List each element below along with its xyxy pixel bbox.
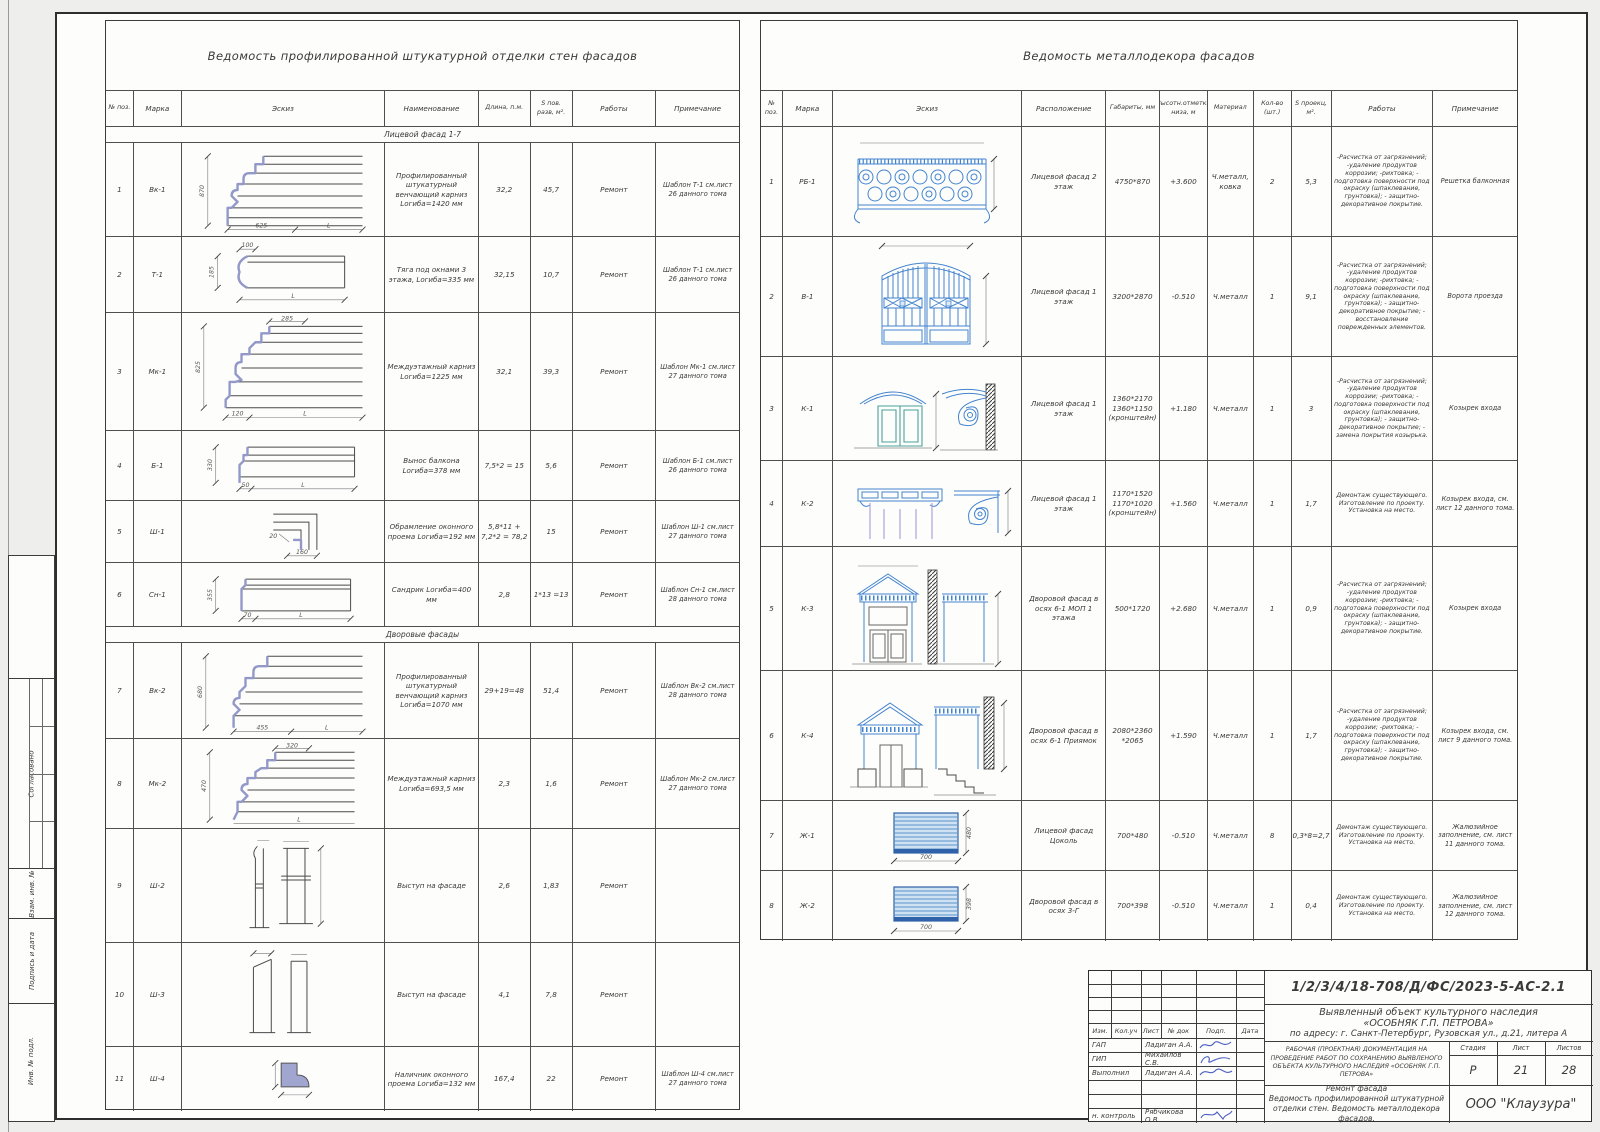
stamp-approved-cell: Согласовано	[9, 679, 54, 869]
svg-text:L: L	[303, 410, 307, 417]
col-mark: Марка	[783, 91, 833, 126]
cell-material: Ч.металл	[1208, 671, 1254, 800]
cell-area: 51,4	[531, 643, 573, 738]
drawing-sheet: { "sheet": { "side_labels": { "approved"…	[0, 0, 1600, 1132]
cell-mark: Ж-1	[783, 801, 833, 870]
svg-text:50: 50	[241, 481, 249, 488]
svg-text:470: 470	[201, 780, 208, 792]
cell-num: 5	[761, 547, 783, 670]
svg-text:680: 680	[197, 686, 204, 698]
sketch-gate	[833, 237, 1022, 356]
cell-name: Выступ на фасаде	[385, 943, 479, 1046]
svg-text:L: L	[301, 481, 305, 488]
cell-name: Сандрик Lогиба=400 мм	[385, 563, 479, 626]
sketch-louver-grille: 700 480	[833, 801, 1022, 870]
metal-table-title: Ведомость металлодекора фасадов	[761, 21, 1517, 91]
cell-proj-area: 1,7	[1292, 461, 1332, 546]
cell-qty: 1	[1254, 461, 1292, 546]
cell-location: Дворовой фасад в осях 3-Г	[1022, 871, 1106, 941]
table-row: 1 Вк-1 870 625 L Профилированный штукату…	[106, 143, 739, 237]
company-name: ООО "Клаузура"	[1449, 1085, 1593, 1123]
svg-text:70: 70	[243, 611, 251, 618]
table-row: 1 РБ-1 Лицевой фасад 2 этаж 4750*870 +3.…	[761, 127, 1517, 237]
cell-qty: 8	[1254, 801, 1292, 870]
table-row: 11 Ш-4 Наличник оконного проема Lогиба=1…	[106, 1047, 739, 1111]
cell-material: Ч.металл	[1208, 461, 1254, 546]
cell-mark: Ш-4	[134, 1047, 182, 1111]
hdr-ndok: № док	[1161, 1023, 1196, 1038]
metal-table-header: № поз. Марка Эскиз Расположение Габариты…	[761, 91, 1517, 127]
cell-area: 39,3	[531, 313, 573, 430]
cell-mark: Ш-1	[134, 501, 182, 562]
table-row: 6 К-4 Дворовой фасад в осях 6-1 П	[761, 671, 1517, 801]
cell-area: 1,6	[531, 739, 573, 828]
cell-qty: 1	[1254, 871, 1292, 941]
cell-mark: Ш-2	[134, 829, 182, 942]
cell-area: 22	[531, 1047, 573, 1111]
signature	[1197, 1065, 1235, 1085]
cell-note: Жалюзийное заполнение, см. лист 11 данно…	[1433, 801, 1517, 870]
table-row: 3 К-1 Лицевой фасад 1 этаж 1360*2170 136…	[761, 357, 1517, 461]
cell-length: 2,8	[479, 563, 531, 626]
cell-area: 45,7	[531, 143, 573, 236]
table-row: 8 Ж-2 700 398 Дворовой фасад в осях 3-Г …	[761, 871, 1517, 941]
table-row: 2 В-1 Лицевой фасад 1 этаж 3200*2870 -0.…	[761, 237, 1517, 357]
cell-length: 32,1	[479, 313, 531, 430]
replace-inv-label: Взам. инв. №	[28, 870, 36, 918]
sketch-facade-projection	[182, 829, 385, 942]
cell-works: Демонтаж существующего. Изготовление по …	[1332, 801, 1434, 870]
cell-mark: Вк-1	[134, 143, 182, 236]
col-qty: Кол-во (шт.)	[1254, 91, 1292, 126]
cell-num: 7	[761, 801, 783, 870]
cell-location: Дворовой фасад в осях 6-1 Приямок	[1022, 671, 1106, 800]
sketch-window-band: 100 185 L	[182, 237, 385, 312]
cell-note: Шаблон Мк-1 см.лист 27 данного тома	[656, 313, 739, 430]
cell-length: 4,1	[479, 943, 531, 1046]
cell-name: Выступ на фасаде	[385, 829, 479, 942]
table-row: 10 Ш-3 Выступ на фасаде 4,1 7,8 Ремонт	[106, 943, 739, 1047]
cell-note: Жалюзийное заполнение, см. лист 12 данно…	[1433, 871, 1517, 941]
stamp-column: Согласовано Взам. инв. № Подпись и дата …	[8, 555, 55, 1122]
cell-area: 1*13 =13	[531, 563, 573, 626]
col-location: Расположение	[1022, 91, 1106, 126]
cell-location: Лицевой фасад 1 этаж	[1022, 461, 1106, 546]
role-author: Выполнил	[1089, 1066, 1141, 1080]
cell-size: 2080*2360 *2065	[1106, 671, 1160, 800]
cell-note: Шаблон Ш-1 см.лист 27 данного тома	[656, 501, 739, 562]
table-row: 2 Т-1 100 185 L Тяга под окнами 3 этажа,…	[106, 237, 739, 313]
col-sketch: Эскиз	[182, 91, 385, 126]
cell-mark: Сн-1	[134, 563, 182, 626]
cell-material: Ч.металл	[1208, 871, 1254, 941]
cell-name: Вынос балкона Lогиба=378 мм	[385, 431, 479, 500]
cell-elev: +1.590	[1160, 671, 1208, 800]
cell-qty: 1	[1254, 357, 1292, 460]
sheet-number: 21	[1497, 1055, 1545, 1085]
cell-num: 10	[106, 943, 134, 1046]
cell-mark: Вк-2	[134, 643, 182, 738]
svg-text:825: 825	[195, 361, 202, 373]
cell-mark: Ж-2	[783, 871, 833, 941]
cell-name: Обрамление оконного проема Lогиба=192 мм	[385, 501, 479, 562]
hdr-data: Дата	[1236, 1023, 1264, 1038]
svg-text:L: L	[325, 724, 329, 731]
svg-text:20: 20	[269, 533, 277, 540]
cell-mark: Т-1	[134, 237, 182, 312]
cell-qty: 1	[1254, 671, 1292, 800]
table-row: 5 Ш-1 20 160 Обрамление оконного проема …	[106, 501, 739, 563]
svg-text:455: 455	[256, 724, 268, 731]
cell-length: 29+19=48	[479, 643, 531, 738]
cell-proj-area: 0,3*8=2,7	[1292, 801, 1332, 870]
svg-text:330: 330	[207, 459, 214, 471]
cell-num: 4	[761, 461, 783, 546]
cell-size: 700*398	[1106, 871, 1160, 941]
cell-elev: +2.680	[1160, 547, 1208, 670]
svg-text:L: L	[291, 292, 295, 299]
cell-note: Шаблон Б-1 см.лист 26 данного тома	[656, 431, 739, 500]
table-row: 9 Ш-2 Выступ на фасаде 2,6 1,83 Ремонт	[106, 829, 739, 943]
col-name: Наименование	[385, 91, 479, 126]
cell-note	[656, 829, 739, 942]
cell-num: 5	[106, 501, 134, 562]
svg-text:700: 700	[920, 854, 932, 861]
inv-orig-label: Инв. № подл.	[28, 1037, 36, 1085]
cell-area: 1,83	[531, 829, 573, 942]
table-row: 8 Мк-2 320 470 L Междуэтажный карниз Lог…	[106, 739, 739, 829]
cell-length: 2,6	[479, 829, 531, 942]
col-works: Работы	[573, 91, 657, 126]
cell-size: 500*1720	[1106, 547, 1160, 670]
cell-num: 6	[761, 671, 783, 800]
cell-mark: Б-1	[134, 431, 182, 500]
cell-material: Ч.металл, ковка	[1208, 127, 1254, 236]
sheet-title-line-1: Ремонт фасада	[1326, 1084, 1387, 1094]
cell-works: Ремонт	[573, 643, 657, 738]
cell-note: Решетка балконная	[1433, 127, 1517, 236]
cell-works: Ремонт	[573, 563, 657, 626]
col-mark: Марка	[134, 91, 182, 126]
table-row: 7 Ж-1 700 480 Лицевой фасад Цоколь 700*4…	[761, 801, 1517, 871]
sketch-interfloor-cornice-2: 320 470 L	[182, 739, 385, 828]
object-address: по адресу: г. Санкт-Петербург, Рузовская…	[1290, 1029, 1567, 1039]
svg-text:160: 160	[296, 549, 308, 556]
role-gap: ГАП	[1089, 1038, 1141, 1052]
cell-mark: К-2	[783, 461, 833, 546]
cell-elev: -0.510	[1160, 871, 1208, 941]
cell-mark: К-1	[783, 357, 833, 460]
cell-note: Козырек входа, см. лист 9 данного тома.	[1433, 671, 1517, 800]
col-area: S пов. разв, м².	[531, 91, 573, 126]
svg-text:120: 120	[231, 410, 243, 417]
cell-area: 10,7	[531, 237, 573, 312]
cell-works: -Расчистка от загрязнений; -удаление про…	[1332, 357, 1434, 460]
sheets-label: Листов	[1545, 1041, 1593, 1055]
cell-location: Дворовой фасад в осях 6-1 МОП 1 этажа	[1022, 547, 1106, 670]
cell-name: Профилированный штукатурный венчающий ка…	[385, 143, 479, 236]
col-size: Габариты, мм	[1106, 91, 1160, 126]
sketch-entrance-canopy	[833, 357, 1022, 460]
cell-works: Ремонт	[573, 739, 657, 828]
sheet-content-title: Ремонт фасада Ведомость профилированной …	[1264, 1085, 1449, 1123]
svg-text:L: L	[327, 222, 331, 229]
cell-size: 1170*1520 1170*1020 (кронштейн)	[1106, 461, 1160, 546]
cell-works: Ремонт	[573, 143, 657, 236]
plaster-table-title: Ведомость профилированной штукатурной от…	[106, 21, 739, 91]
cell-location: Лицевой фасад Цоколь	[1022, 801, 1106, 870]
cell-note: Шаблон Вк-2 см.лист 28 данного тома	[656, 643, 739, 738]
sheets-total: 28	[1545, 1055, 1593, 1085]
cell-mark: РБ-1	[783, 127, 833, 236]
cell-length: 2,3	[479, 739, 531, 828]
svg-text:L: L	[299, 611, 303, 618]
cell-length: 32,15	[479, 237, 531, 312]
plaster-schedule-table: Ведомость профилированной штукатурной от…	[105, 20, 740, 1110]
col-length: Длина, п.м.	[479, 91, 531, 126]
sketch-entrance-canopy-2	[833, 461, 1022, 546]
doc-number: 1/2/3/4/18-708/Д/ФС/2023-5-АС-2.1	[1264, 971, 1593, 1004]
sketch-window-framing: 20 160	[182, 501, 385, 562]
cell-elev: -0.510	[1160, 237, 1208, 356]
section-facade-1-7: Лицевой фасад 1-7	[106, 127, 739, 143]
cell-mark: К-3	[783, 547, 833, 670]
table-row: 6 Сн-1 355 70 L Сандрик Lогиба=400 мм 2,…	[106, 563, 739, 627]
col-proj-area: S проекц, м².	[1292, 91, 1332, 126]
cell-num: 6	[106, 563, 134, 626]
table-row: 4 К-2 Лицевой фасад 1 этаж 1170*1520 117…	[761, 461, 1517, 547]
signature	[1197, 1107, 1235, 1127]
cell-area: 7,8	[531, 943, 573, 1046]
plaster-table-header: № поз. Марка Эскиз Наименование Длина, п…	[106, 91, 739, 127]
cell-material: Ч.металл	[1208, 357, 1254, 460]
object-line-1: Выявленный объект культурного наследия	[1319, 1007, 1538, 1018]
cell-qty: 1	[1254, 547, 1292, 670]
cell-mark: Мк-1	[134, 313, 182, 430]
cell-works: Ремонт	[573, 1047, 657, 1111]
section-courtyard-facades: Дворовые фасады	[106, 627, 739, 643]
sheet-label: Лист	[1497, 1041, 1545, 1055]
col-num: № поз.	[761, 91, 783, 126]
col-num: № поз.	[106, 91, 134, 126]
hdr-list: Лист	[1141, 1023, 1161, 1038]
cell-note: Шаблон Сн-1 см.лист 28 данного тома	[656, 563, 739, 626]
cell-num: 3	[106, 313, 134, 430]
cell-num: 3	[761, 357, 783, 460]
svg-text:100: 100	[241, 242, 253, 249]
svg-text:625: 625	[255, 222, 267, 229]
cell-location: Лицевой фасад 1 этаж	[1022, 237, 1106, 356]
col-material: Материал	[1208, 91, 1254, 126]
cell-area: 15	[531, 501, 573, 562]
cell-works: -Расчистка от загрязнений; -удаление про…	[1332, 547, 1434, 670]
hdr-podp: Подп.	[1196, 1023, 1236, 1038]
cell-name: Междуэтажный карниз Lогиба=693,5 мм	[385, 739, 479, 828]
svg-text:L: L	[297, 816, 301, 823]
cell-works: Демонтаж существующего. Изготовление по …	[1332, 461, 1434, 546]
role-gap-name: Ладиган А.А.	[1142, 1038, 1196, 1052]
stage-value: Р	[1449, 1055, 1497, 1085]
cell-name: Междуэтажный карниз Lогиба=1225 мм	[385, 313, 479, 430]
svg-text:870: 870	[199, 185, 206, 197]
cell-works: -Расчистка от загрязнений; -удаление про…	[1332, 127, 1434, 236]
svg-text:320: 320	[286, 742, 298, 749]
col-works: Работы	[1332, 91, 1434, 126]
sketch-crowning-cornice-2: 680 455 L	[182, 643, 385, 738]
cell-num: 8	[761, 871, 783, 941]
stamp-sign-date-cell: Подпись и дата	[9, 919, 54, 1004]
cell-length: 167,4	[479, 1047, 531, 1111]
role-gip-name: Михайлов С.В.	[1142, 1052, 1196, 1066]
cell-length: 7,5*2 = 15	[479, 431, 531, 500]
cell-size: 1360*2170 1360*1150 (кронштейн)	[1106, 357, 1160, 460]
cell-material: Ч.металл	[1208, 801, 1254, 870]
cell-num: 9	[106, 829, 134, 942]
sheet-title-line-2: Ведомость профилированной штукатурной от…	[1266, 1094, 1447, 1125]
cell-proj-area: 0,4	[1292, 871, 1332, 941]
sketch-interfloor-cornice: 285 825 120 L	[182, 313, 385, 430]
hdr-izm: Изм.	[1089, 1023, 1111, 1038]
cell-material: Ч.металл	[1208, 237, 1254, 356]
sketch-balcony-slab: 330 50 L	[182, 431, 385, 500]
cell-num: 1	[761, 127, 783, 236]
cell-length: 32,2	[479, 143, 531, 236]
cell-num: 1	[106, 143, 134, 236]
cell-works: Ремонт	[573, 431, 657, 500]
col-note: Примечание	[1433, 91, 1517, 126]
cell-note: Шаблон Ш-4 см.лист 27 данного тома	[656, 1047, 739, 1111]
title-block: Изм. Кол.уч Лист № док Подп. Дата ГАП Ла…	[1088, 970, 1592, 1122]
project-description: РАБОЧАЯ (ПРОЕКТНАЯ) ДОКУМЕНТАЦИЯ НА ПРОВ…	[1264, 1041, 1449, 1085]
cell-note: Шаблон Т-1 см.лист 26 данного тома	[656, 143, 739, 236]
cell-proj-area: 0,9	[1292, 547, 1332, 670]
metal-decor-schedule-table: Ведомость металлодекора фасадов № поз. М…	[760, 20, 1518, 940]
hdr-koluch: Кол.уч	[1111, 1023, 1141, 1038]
cell-works: Ремонт	[573, 237, 657, 312]
sketch-balcony-railing	[833, 127, 1022, 236]
cell-length: 5,8*11 + 7,2*2 = 78,2	[479, 501, 531, 562]
cell-note: Козырек входа, см. лист 12 данного тома.	[1433, 461, 1517, 546]
cell-qty: 1	[1254, 237, 1292, 356]
cell-proj-area: 3	[1292, 357, 1332, 460]
col-note: Примечание	[656, 91, 739, 126]
cell-name: Профилированный штукатурный венчающий ка…	[385, 643, 479, 738]
cell-proj-area: 1,7	[1292, 671, 1332, 800]
svg-text:480: 480	[966, 826, 973, 838]
cell-location: Лицевой фасад 1 этаж	[1022, 357, 1106, 460]
cell-works: -Расчистка от загрязнений; -удаление про…	[1332, 671, 1434, 800]
table-row: 7 Вк-2 680 455 L Профилированный штукату…	[106, 643, 739, 739]
role-gip: ГИП	[1089, 1052, 1141, 1066]
cell-mark: Мк-2	[134, 739, 182, 828]
cell-mark: К-4	[783, 671, 833, 800]
cell-area: 5,6	[531, 431, 573, 500]
cell-num: 8	[106, 739, 134, 828]
cell-works: Ремонт	[573, 501, 657, 562]
col-elev: Высотн.отметка низа, м	[1160, 91, 1208, 126]
cell-proj-area: 5,3	[1292, 127, 1332, 236]
cell-name: Тяга под окнами 3 этажа, Lогиба=335 мм	[385, 237, 479, 312]
cell-size: 4750*870	[1106, 127, 1160, 236]
cell-size: 3200*2870	[1106, 237, 1160, 356]
cell-num: 4	[106, 431, 134, 500]
cell-note: Козырек входа	[1433, 547, 1517, 670]
table-row: 5 К-3 Дворовой фасад в осях 6-1 МОП 1 эт…	[761, 547, 1517, 671]
sketch-pit-canopy	[833, 671, 1022, 800]
cell-works: Ремонт	[573, 943, 657, 1046]
table-row: 3 Мк-1 285 825 120 L Междуэтажный карниз…	[106, 313, 739, 431]
sketch-louver-grille-2: 700 398	[833, 871, 1022, 941]
cell-location: Лицевой фасад 2 этаж	[1022, 127, 1106, 236]
cell-note: Козырек входа	[1433, 357, 1517, 460]
svg-text:185: 185	[209, 266, 216, 278]
cell-works: Ремонт	[573, 313, 657, 430]
cell-proj-area: 9,1	[1292, 237, 1332, 356]
cell-size: 700*480	[1106, 801, 1160, 870]
role-author-name: Ладиган А.А.	[1142, 1066, 1196, 1080]
cell-works: Ремонт	[573, 829, 657, 942]
stamp-empty-cell	[9, 556, 54, 679]
cell-num: 2	[106, 237, 134, 312]
cell-num: 11	[106, 1047, 134, 1111]
svg-text:355: 355	[207, 589, 214, 601]
cell-note: Шаблон Т-1 см.лист 26 данного тома	[656, 237, 739, 312]
col-sketch: Эскиз	[833, 91, 1022, 126]
svg-text:285: 285	[281, 316, 293, 322]
svg-text:398: 398	[966, 898, 973, 910]
sketch-window-casing	[182, 1047, 385, 1111]
cell-elev: -0.510	[1160, 801, 1208, 870]
role-ncontrol-name: Рябчикова О.В.	[1142, 1108, 1196, 1123]
stamp-replace-inv-cell: Взам. инв. №	[9, 869, 54, 919]
cell-elev: +1.560	[1160, 461, 1208, 546]
object-name: Выявленный объект культурного наследия «…	[1264, 1004, 1593, 1041]
cell-works: -Расчистка от загрязнений; -удаление про…	[1332, 237, 1434, 356]
sketch-sandrik: 355 70 L	[182, 563, 385, 626]
sketch-crowning-cornice: 870 625 L	[182, 143, 385, 236]
sketch-courtyard-canopy	[833, 547, 1022, 670]
sign-date-label: Подпись и дата	[28, 932, 36, 990]
svg-text:700: 700	[920, 924, 932, 931]
cell-note: Ворота проезда	[1433, 237, 1517, 356]
object-line-2: «ОСОБНЯК Г.П. ПЕТРОВА»	[1363, 1018, 1493, 1029]
cell-note: Шаблон Мк-2 см.лист 27 данного тома	[656, 739, 739, 828]
cell-mark: В-1	[783, 237, 833, 356]
cell-num: 2	[761, 237, 783, 356]
cell-elev: +1.180	[1160, 357, 1208, 460]
cell-mark: Ш-3	[134, 943, 182, 1046]
table-row: 4 Б-1 330 50 L Вынос балкона Lогиба=378 …	[106, 431, 739, 501]
stage-label: Стадия	[1449, 1041, 1497, 1055]
role-ncontrol: н. контроль	[1089, 1108, 1141, 1123]
cell-note	[656, 943, 739, 1046]
cell-name: Наличник оконного проема Lогиба=132 мм	[385, 1047, 479, 1111]
cell-num: 7	[106, 643, 134, 738]
sketch-facade-projection-2	[182, 943, 385, 1046]
cell-works: Демонтаж существующего. Изготовление по …	[1332, 871, 1434, 941]
cell-elev: +3.600	[1160, 127, 1208, 236]
cell-material: Ч.металл	[1208, 547, 1254, 670]
cell-qty: 2	[1254, 127, 1292, 236]
stamp-inv-orig-cell: Инв. № подл.	[9, 1004, 54, 1118]
